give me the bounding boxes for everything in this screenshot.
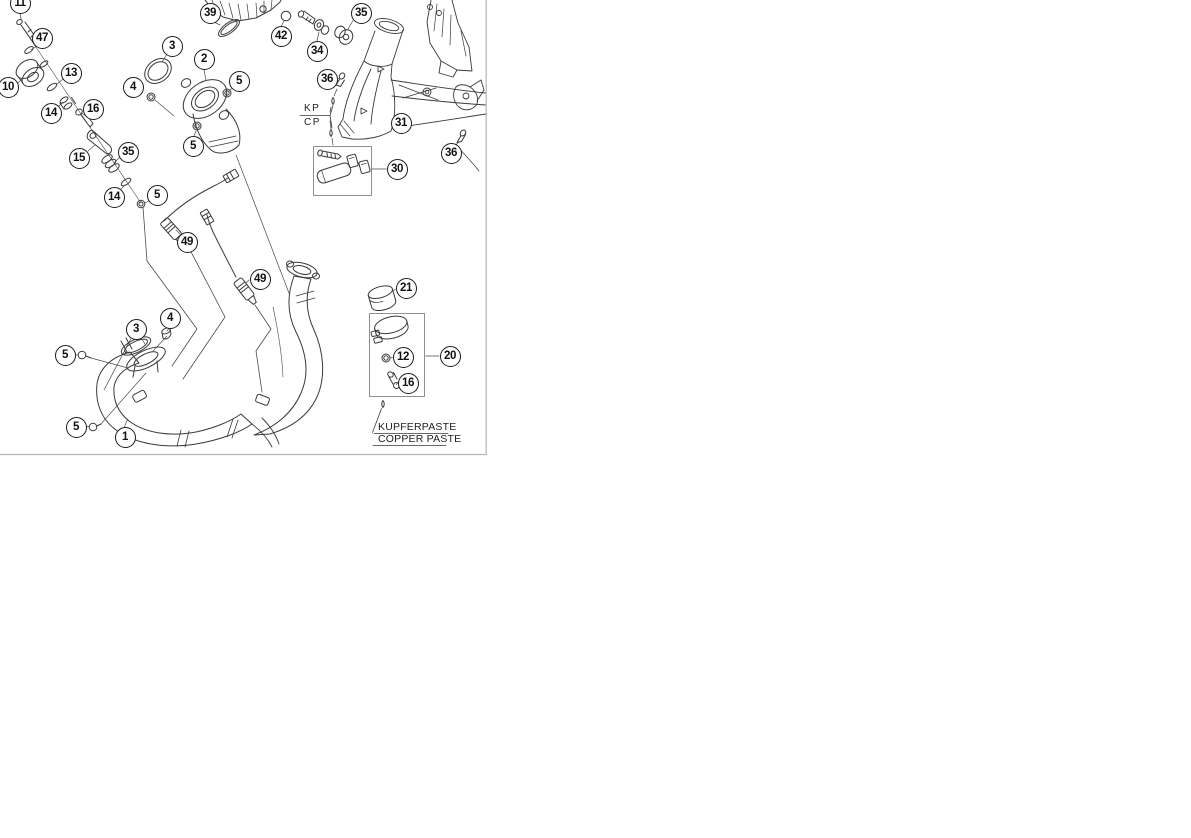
- callout-49: 49: [177, 232, 198, 253]
- callout-13: 13: [61, 63, 82, 84]
- callout-4: 4: [160, 308, 181, 329]
- callout-49: 49: [250, 269, 271, 290]
- frame-bolt-36-right: [457, 129, 467, 143]
- lambda-sensor-49b: [200, 209, 259, 306]
- callout-5: 5: [183, 136, 204, 157]
- callout-12: 12: [393, 347, 414, 368]
- callout-34: 34: [307, 41, 328, 62]
- sleeve-21: [367, 284, 398, 313]
- callout-39: 39: [200, 3, 221, 24]
- callout-35: 35: [118, 142, 139, 163]
- callout-10: 10: [0, 77, 19, 98]
- callout-5: 5: [66, 417, 87, 438]
- copper-paste-dabs: [330, 98, 385, 408]
- callout-21: 21: [396, 278, 417, 299]
- lambda-sensor-49a: [160, 169, 239, 245]
- copper-paste-label: COPPER PASTE: [378, 433, 461, 445]
- callout-31: 31: [391, 113, 412, 134]
- gasket-3-upper: [140, 53, 176, 88]
- callout-36: 36: [441, 143, 462, 164]
- callout-14: 14: [104, 187, 125, 208]
- callout-1: 1: [115, 427, 136, 448]
- callout-2: 2: [194, 49, 215, 70]
- callout-47: 47: [32, 28, 53, 49]
- callout-20: 20: [440, 346, 461, 367]
- callout-42: 42: [271, 26, 292, 47]
- heat-shield-mount-hardware: [13, 18, 145, 207]
- callout-3: 3: [126, 319, 147, 340]
- callout-16: 16: [398, 373, 419, 394]
- callout-5: 5: [147, 185, 168, 206]
- callout-36: 36: [317, 69, 338, 90]
- callout-35: 35: [351, 3, 372, 24]
- kp-label: KP: [304, 103, 320, 114]
- mount-kit-box-30: [314, 147, 372, 196]
- parts-diagram: KP CP KUPFERPASTE COPPER PASTE 114710131…: [0, 0, 487, 458]
- callout-14: 14: [41, 103, 62, 124]
- callout-5: 5: [55, 345, 76, 366]
- ball-42: [281, 11, 291, 21]
- kupferpaste-label: KUPFERPASTE: [378, 421, 456, 433]
- callout-15: 15: [69, 148, 90, 169]
- callout-16: 16: [83, 99, 104, 120]
- cp-label: CP: [304, 117, 321, 128]
- callout-5: 5: [229, 71, 250, 92]
- frame-section: [338, 0, 486, 171]
- callout-4: 4: [123, 77, 144, 98]
- callout-30: 30: [387, 159, 408, 180]
- callout-3: 3: [162, 36, 183, 57]
